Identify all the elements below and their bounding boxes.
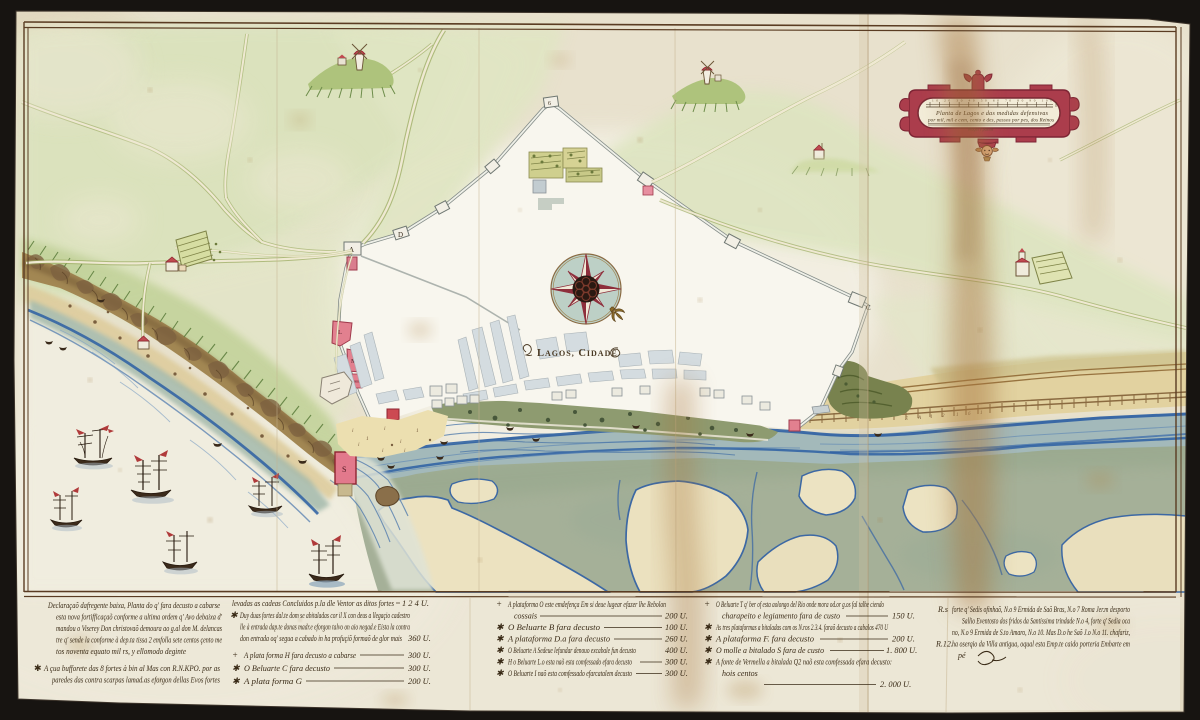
svg-text:A plataforma F. fara decusto: A plataforma F. fara decusto	[715, 635, 814, 644]
svg-text:hois centos: hois centos	[722, 669, 758, 678]
svg-text:A plata forma H fara decusto a: A plata forma H fara decusto a cabarse	[243, 651, 356, 660]
svg-text:A fonte de Vermella a bitalada: A fonte de Vermella a bitalada Q2 naõ es…	[715, 658, 892, 667]
svg-text:por mil, mil e cem, cento e de: por mil, mil e cem, cento e des, passos …	[927, 118, 1054, 124]
svg-text:200 U.: 200 U.	[408, 677, 431, 686]
svg-text:100 U.: 100 U.	[665, 623, 688, 632]
svg-text:300 U.: 300 U.	[664, 669, 688, 678]
svg-text:300 U.: 300 U.	[664, 658, 688, 667]
svg-text:H o Beluarte L.o esta naõ esta: H o Beluarte L.o esta naõ esta comfessad…	[507, 658, 632, 667]
svg-text:tre q' sende la conforme à dep: tre q' sende la conforme à dep.ta tissa …	[56, 636, 222, 645]
svg-text:2. 000 U.: 2. 000 U.	[880, 680, 911, 689]
svg-text:O Beluarte C fara decusto: O Beluarte C fara decusto	[244, 664, 330, 673]
svg-text:S: S	[342, 465, 346, 474]
svg-text:1: 1	[366, 436, 369, 442]
svg-text:O Beluarte A Sedeue lefundar d: O Beluarte A Sedeue lefundar denouo exca…	[508, 646, 636, 655]
svg-text:✱: ✱	[34, 663, 42, 673]
svg-text:ha oserqio da Villa antigua, o: ha oserqio da Villa antigua, oqual esta …	[952, 640, 1130, 649]
svg-text:400 U.: 400 U.	[665, 646, 688, 655]
svg-text:O Beluarte T q' ber of esta ao: O Beluarte T q' ber of esta aolongo del …	[716, 600, 884, 609]
svg-text:A çua bufforete das 8 fortes à: A çua bufforete das 8 fortes à bin al Ma…	[43, 664, 220, 673]
svg-text:150 U.: 150 U.	[892, 612, 915, 621]
svg-text:200 U.: 200 U.	[892, 635, 915, 644]
svg-text:260 U.: 260 U.	[665, 635, 688, 644]
svg-text:levadas as cadeas Concluidos p: levadas as cadeas Concluidos p.la dle Ve…	[232, 599, 394, 608]
svg-text:300 U.: 300 U.	[407, 651, 431, 660]
svg-text:Declaraçaõ dafregente baixa, P: Declaraçaõ dafregente baixa, Planta do q…	[47, 601, 220, 610]
svg-text:charapeito e legiamento fara d: charapeito e legiamento fara de custo	[722, 612, 840, 621]
svg-text:mandou o Viserey Don christova: mandou o Viserey Don christovaõ demoura …	[56, 624, 222, 633]
svg-text:R.s: R.s	[937, 605, 948, 614]
svg-text:pé: pé	[957, 651, 966, 660]
svg-text:O molle a bitalado S fara de c: O molle a bitalado S fara de custo	[716, 646, 824, 655]
svg-text:Sallio Eventosto dos fridos da: Sallio Eventosto dos fridos da Santissim…	[962, 617, 1130, 626]
svg-text:cossais: cossais	[514, 612, 537, 621]
svg-text:LAGOS, CIDADE: LAGOS, CIDADE	[537, 348, 618, 359]
svg-text:paredes das contra scarpas lam: paredes das contra scarpas lamad.as efor…	[51, 676, 220, 685]
svg-text:1 2 4 U.: 1 2 4 U.	[402, 599, 429, 608]
svg-text:300 U.: 300 U.	[407, 664, 431, 673]
svg-text:O Beluarte B fara decusto: O Beluarte B fara decusto	[508, 623, 600, 632]
svg-text:R.12.: R.12.	[935, 640, 953, 649]
svg-text:tos noventa equato mil rs, y e: tos noventa equato mil rs, y ellomodo de…	[56, 647, 186, 656]
svg-text:Duy duas fortes dal.te dom se: Duy duas fortes dal.te dom se abitaladas…	[239, 611, 410, 620]
svg-text:don entrada oq' segua a cabado: don entrada oq' segua a cabado in ha pro…	[240, 634, 402, 643]
svg-text:lle à entrada dap.te donas mad: lle à entrada dap.te donas madr.e eforgo…	[240, 623, 410, 632]
svg-text:6: 6	[548, 101, 551, 107]
svg-text:+: +	[232, 650, 238, 660]
svg-text:forte q' Sedis ofinhaõ, N.o 9: forte q' Sedis ofinhaõ, N.o 9 Ermida de …	[952, 605, 1130, 614]
svg-text:1. 800 U.: 1. 800 U.	[886, 646, 917, 655]
svg-text:O Beluarte I naõ esta comfessa: O Beluarte I naõ esta comfessado efarcat…	[508, 669, 632, 678]
svg-text:A plata forma G: A plata forma G	[243, 677, 302, 686]
svg-text:+: +	[496, 599, 502, 609]
svg-text:no, N.o 9 Ermida de S.to Amaro: no, N.o 9 Ermida de S.to Amaro, N.o 10. …	[952, 628, 1130, 637]
svg-text:360 U.: 360 U.	[407, 634, 431, 643]
svg-text:D: D	[398, 231, 403, 239]
svg-text:esta nova fortifficaçaõ confor: esta nova fortifficaçaõ conforme a ultim…	[56, 613, 222, 622]
svg-text:+: +	[704, 599, 710, 609]
svg-text:As tres plataformas a bitalada: As tres plataformas a bitaladas com os N…	[715, 623, 888, 632]
svg-text:1: 1	[416, 428, 419, 434]
svg-text:A plataforma D.a fara decusto: A plataforma D.a fara decusto	[507, 635, 610, 644]
svg-text:200 U.: 200 U.	[665, 612, 688, 621]
svg-text:A plataforma O este emdefença: A plataforma O este emdefença Em si deue…	[507, 600, 666, 609]
